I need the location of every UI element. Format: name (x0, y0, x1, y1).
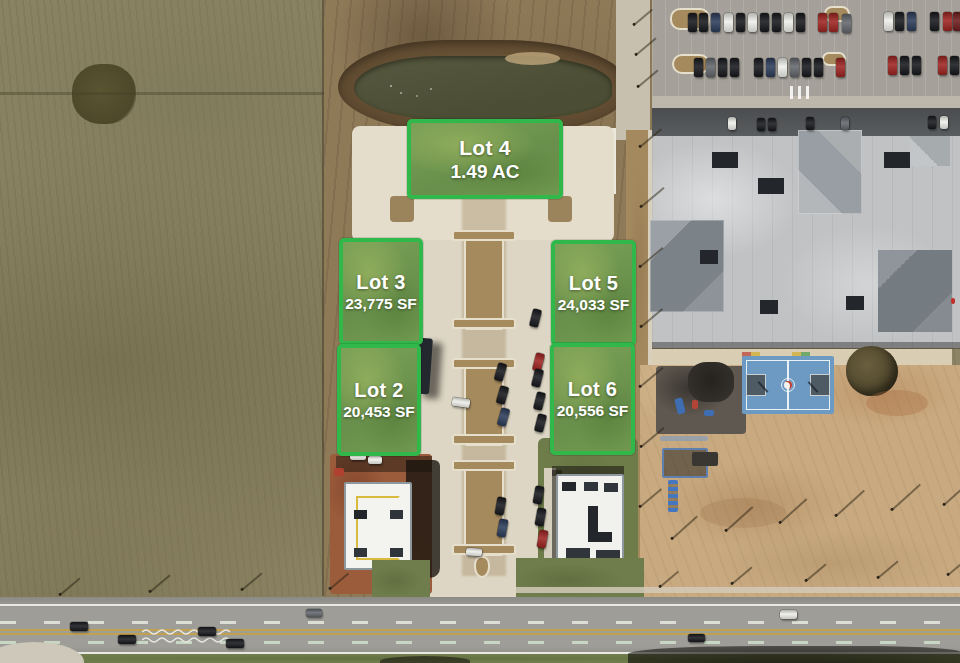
vehicle (718, 58, 727, 77)
vehicle (796, 13, 805, 32)
vehicle (688, 634, 705, 642)
vehicle (706, 58, 715, 77)
plaza-notch-dirt (548, 196, 572, 222)
play-piece-blue (704, 410, 714, 416)
vehicle (754, 58, 763, 77)
lot-name: Lot 5 (569, 272, 618, 295)
road-squiggle-marking (142, 628, 234, 644)
vehicle (818, 13, 827, 32)
vehicle (768, 118, 776, 131)
play-box-dark (692, 452, 718, 466)
dirt-red-patch (866, 390, 928, 416)
vehicle (928, 116, 936, 129)
vehicle (784, 13, 793, 32)
vehicle (772, 13, 781, 32)
vehicle (950, 56, 959, 75)
hvac-unit (588, 506, 598, 532)
vehicle (943, 12, 952, 31)
vehicle (842, 14, 851, 33)
ducks (390, 85, 392, 87)
grass-verge-east (516, 558, 644, 602)
grass-verge-west (372, 560, 430, 602)
lot-overlay-lot-4: Lot 4 1.49 AC (407, 119, 563, 199)
vehicle (724, 13, 733, 32)
lot-area: 20,453 SF (343, 403, 415, 421)
lot-overlay-lot-5: Lot 5 24,033 SF (551, 240, 636, 346)
roof-yellow-piping (356, 496, 400, 560)
vehicle (884, 12, 893, 31)
lot-area: 24,033 SF (558, 296, 630, 314)
vehicle (938, 56, 947, 75)
vehicle (814, 58, 823, 77)
vehicle (748, 13, 757, 32)
vehicle (306, 609, 322, 617)
lot-area: 23,775 SF (345, 295, 417, 313)
vehicle (895, 12, 904, 31)
vehicle (736, 13, 745, 32)
median-cap (452, 230, 516, 241)
court-logo (784, 381, 792, 389)
vehicle (711, 13, 720, 32)
lot-name: Lot 2 (354, 379, 403, 402)
play-structure (688, 362, 734, 402)
vehicle (802, 58, 811, 77)
vehicle (368, 456, 382, 464)
lot-overlay-lot-2: Lot 2 20,453 SF (337, 344, 421, 456)
vehicle (806, 117, 814, 130)
vehicle (930, 12, 939, 31)
vehicle (790, 58, 799, 77)
vehicle (953, 12, 960, 31)
play-ladder (668, 480, 678, 512)
pond-sandbar (505, 52, 560, 65)
median-cap (452, 544, 516, 555)
tree-shadow-bottom (628, 646, 960, 663)
vehicle (694, 58, 703, 77)
vehicle (780, 610, 797, 619)
median-cap (452, 318, 516, 329)
building1-roof (344, 482, 412, 570)
building2-roof (556, 474, 624, 566)
median-cap (452, 434, 516, 445)
vehicle (836, 58, 845, 77)
school-wing-right (878, 250, 952, 332)
vehicle (766, 58, 775, 77)
person-red (951, 298, 955, 304)
red-equipment (334, 468, 344, 476)
vehicle (829, 13, 838, 32)
hvac-unit (588, 532, 612, 542)
entry-road-north (616, 0, 650, 140)
vehicle (778, 58, 787, 77)
tree-shadow-bottom (380, 656, 470, 663)
vehicle (730, 58, 739, 77)
vehicle (688, 13, 697, 32)
school-wing-center (798, 130, 862, 214)
lot-overlay-lot-6: Lot 6 20,556 SF (550, 343, 635, 455)
lot-name: Lot 6 (568, 378, 617, 401)
basketball-court (742, 356, 834, 414)
vehicle (757, 118, 765, 131)
lot-overlay-lot-3: Lot 3 23,775 SF (339, 238, 423, 345)
vehicle (70, 622, 88, 631)
play-piece-red (692, 400, 698, 409)
roof-vent (712, 152, 738, 168)
hvac-unit (354, 510, 367, 519)
field-track-line (0, 92, 330, 95)
monkey-bars (660, 436, 708, 441)
vehicle (226, 639, 244, 648)
school-wing-top-right (910, 136, 950, 166)
crosswalk (790, 86, 814, 99)
lot-name: Lot 3 (356, 271, 405, 294)
sidewalk-along-road (516, 587, 960, 593)
parking-island (672, 54, 710, 74)
vehicle (907, 12, 916, 31)
driveway-island (474, 556, 490, 578)
median-cap (452, 460, 516, 471)
vehicle (888, 56, 897, 75)
vehicle (466, 547, 483, 556)
hvac-unit (562, 482, 576, 491)
median-island (464, 232, 504, 330)
plaza-notch-dirt (390, 196, 414, 222)
vehicle (841, 117, 849, 130)
vehicle (760, 13, 769, 32)
roof-vent (700, 250, 718, 264)
lot-area: 20,556 SF (557, 402, 629, 420)
roof-edge-shadow (652, 342, 960, 349)
vehicle (118, 635, 136, 644)
school-wing-left (650, 220, 724, 312)
lot-name: Lot 4 (459, 136, 511, 160)
vehicle (940, 116, 948, 129)
pond (354, 56, 612, 120)
lot-area: 1.49 AC (451, 161, 520, 183)
vehicle (728, 117, 736, 130)
aerial-photo: Lot 4 1.49 AC Lot 3 23,775 SF Lot 5 24,0… (0, 0, 960, 663)
vehicle (900, 56, 909, 75)
vehicle (912, 56, 921, 75)
vehicle (699, 13, 708, 32)
tree (846, 346, 898, 396)
vehicle (198, 627, 216, 636)
